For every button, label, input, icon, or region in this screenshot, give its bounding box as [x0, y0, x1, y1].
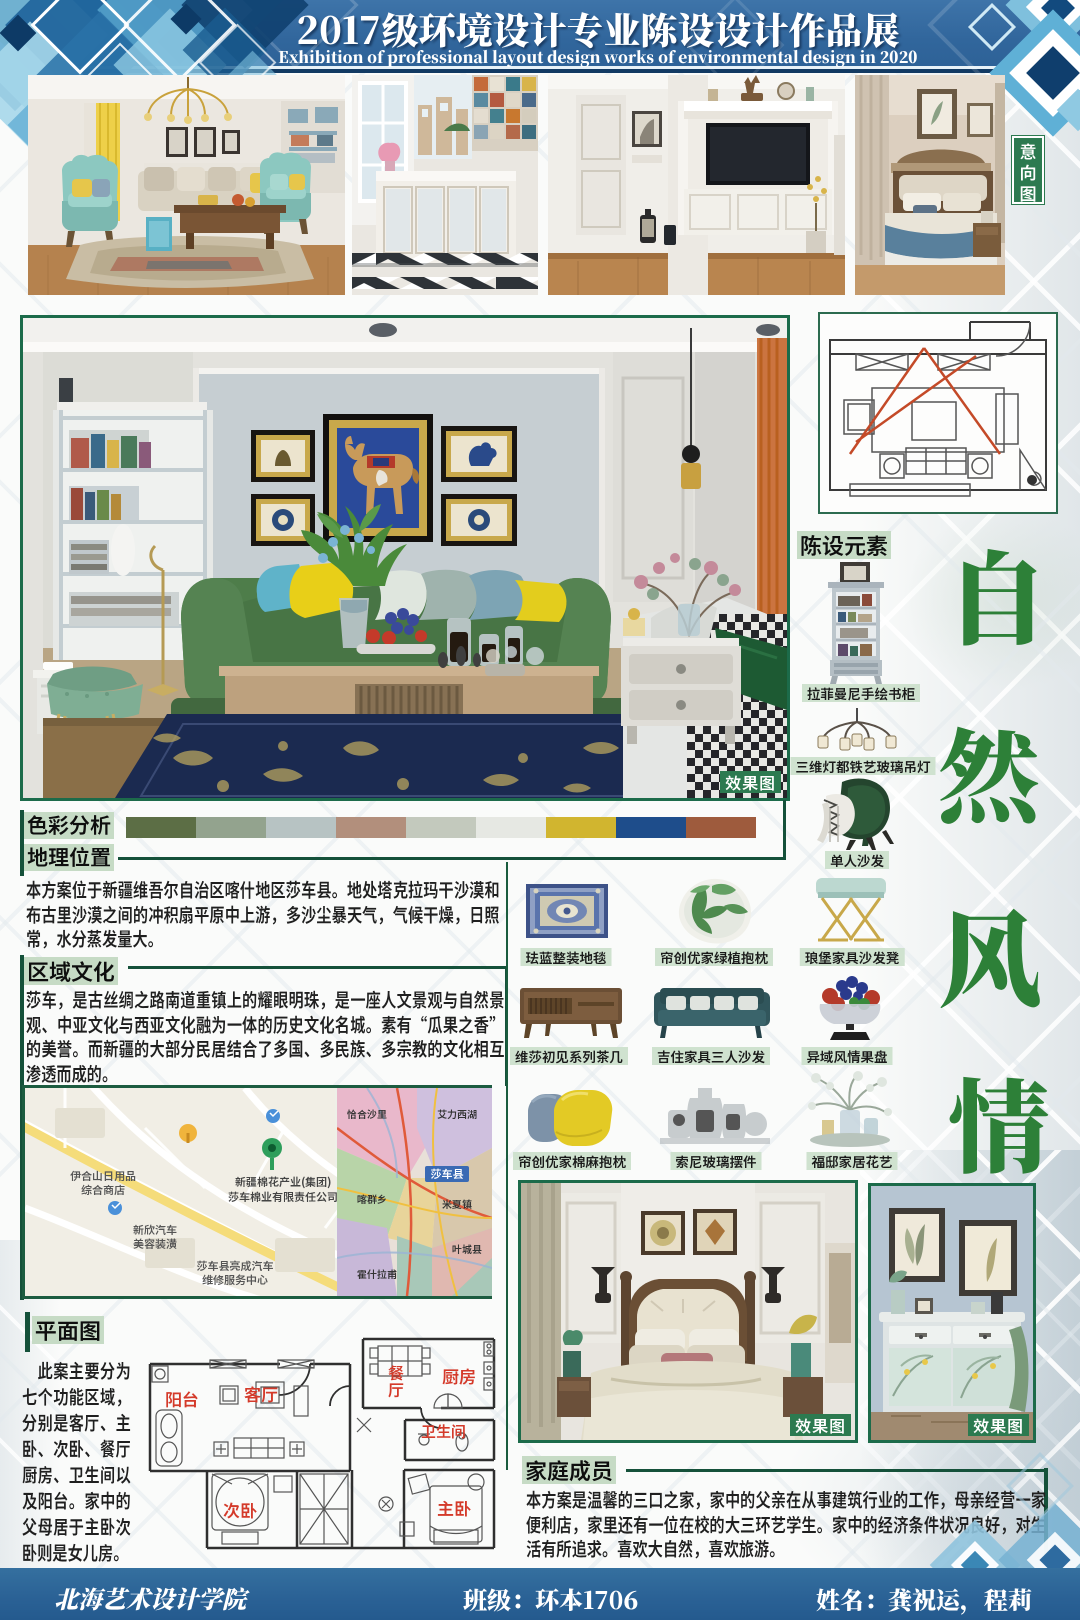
svg-text:莎车县: 莎车县: [431, 1166, 464, 1182]
svg-text:叶城县: 叶城县: [452, 1241, 482, 1256]
svg-text:维修服务中心: 维修服务中心: [202, 1272, 268, 1288]
svg-text:霍什拉甫: 霍什拉甫: [357, 1266, 397, 1281]
svg-text:客厅: 客厅: [244, 1381, 278, 1406]
svg-text:美容装潢: 美容装潢: [133, 1236, 177, 1252]
svg-text:综合商店: 综合商店: [81, 1182, 125, 1198]
svg-text:主卧: 主卧: [437, 1495, 471, 1520]
svg-text:阳台: 阳台: [165, 1386, 199, 1411]
svg-text:米夏镇: 米夏镇: [441, 1196, 472, 1211]
svg-text:厨房: 厨房: [442, 1363, 476, 1388]
svg-text:艾力西湖: 艾力西湖: [437, 1106, 477, 1121]
svg-text:恰合沙里: 恰合沙里: [347, 1106, 387, 1121]
svg-text:卫生间: 卫生间: [421, 1421, 466, 1442]
svg-text:喀群乡: 喀群乡: [357, 1191, 387, 1206]
svg-text:莎车棉业有限责任公司: 莎车棉业有限责任公司: [228, 1189, 338, 1205]
svg-text:次卧: 次卧: [223, 1497, 257, 1522]
svg-text:新疆棉花产业(集团): 新疆棉花产业(集团): [235, 1174, 331, 1190]
svg-text:厅: 厅: [388, 1377, 404, 1401]
